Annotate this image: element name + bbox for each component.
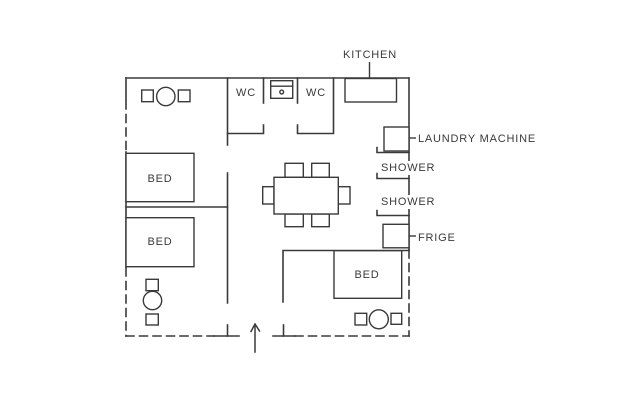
bed-lower-left-label: BED <box>145 235 174 249</box>
chair-icon <box>312 214 330 227</box>
chair-icon <box>263 187 274 204</box>
dining-table-icon <box>274 177 338 214</box>
wc-right-label: WC <box>304 86 328 100</box>
chair-icon <box>285 163 303 177</box>
wc-left-label: WC <box>234 86 258 100</box>
stool-icon <box>178 90 190 102</box>
round-table-icon <box>369 310 388 329</box>
frige-icon <box>383 224 409 248</box>
bed-bottom-right-label: BED <box>352 268 381 282</box>
entry-door-icon <box>251 324 260 352</box>
stool-icon <box>391 313 402 324</box>
stool-icon <box>355 313 367 325</box>
stool-icon <box>142 90 154 102</box>
frige-label: FRIGE <box>416 231 458 245</box>
stool-icon <box>146 314 158 325</box>
floor-plan-drawing <box>0 0 640 417</box>
shower-lower-label: SHOWER <box>379 195 437 209</box>
bed-upper-left-label: BED <box>145 172 174 186</box>
round-table-icon <box>157 87 175 105</box>
floor-plan: KITCHEN WC WC LAUNDRY MACHINE SHOWER SHO… <box>0 0 640 417</box>
kitchen-label: KITCHEN <box>341 48 399 62</box>
chair-icon <box>338 187 350 204</box>
laundry-machine-label: LAUNDRY MACHINE <box>416 132 538 146</box>
laundry-machine-icon <box>384 127 409 151</box>
chair-icon <box>285 214 303 227</box>
kitchen-counter-icon <box>345 79 397 103</box>
furniture <box>126 79 409 329</box>
chair-icon <box>312 163 330 177</box>
wc-left-bottom-wall <box>228 125 264 134</box>
shower-upper-label: SHOWER <box>379 161 437 175</box>
shower-partition-3 <box>377 211 409 216</box>
stool-icon <box>146 279 158 290</box>
round-table-icon <box>143 291 161 309</box>
